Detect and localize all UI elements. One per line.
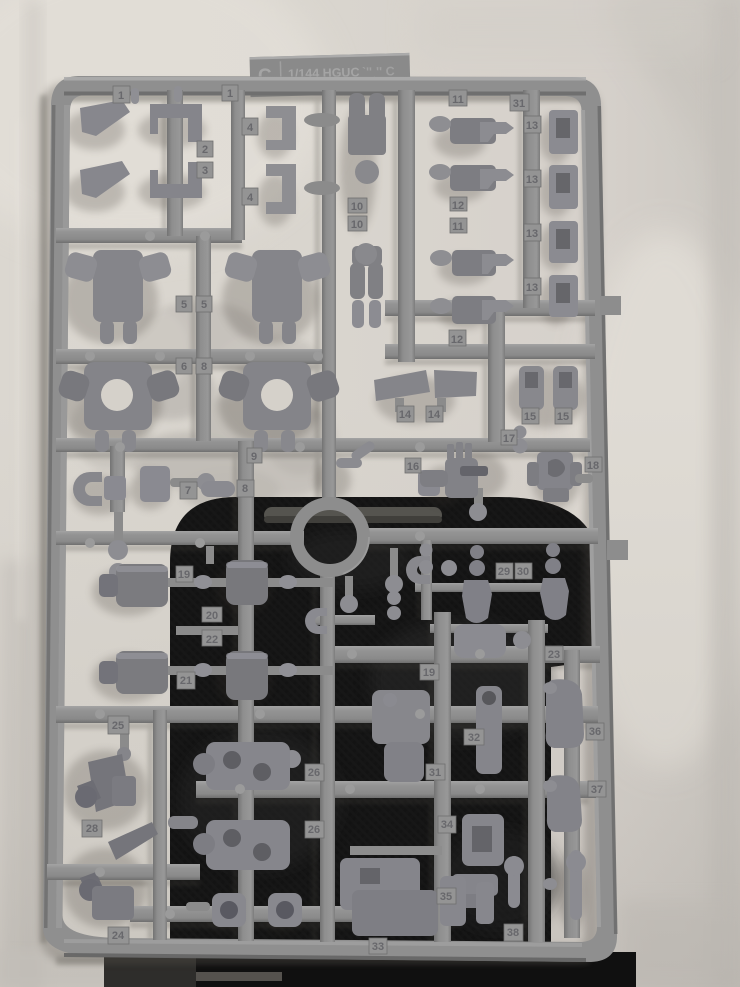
- svg-text:22: 22: [206, 634, 218, 646]
- svg-text:31: 31: [513, 98, 525, 110]
- svg-text:26: 26: [308, 824, 320, 836]
- svg-text:13: 13: [526, 228, 538, 240]
- svg-text:5: 5: [181, 299, 187, 311]
- svg-text:14: 14: [399, 409, 412, 421]
- svg-text:13: 13: [526, 282, 538, 294]
- svg-text:1: 1: [118, 90, 124, 102]
- svg-text:17: 17: [503, 433, 515, 445]
- svg-text:21: 21: [180, 675, 192, 687]
- svg-text:10: 10: [351, 201, 363, 213]
- svg-text:8: 8: [242, 483, 248, 495]
- svg-text:31: 31: [429, 767, 441, 779]
- svg-text:25: 25: [112, 720, 124, 732]
- svg-text:5: 5: [201, 299, 207, 311]
- svg-text:15: 15: [524, 411, 536, 423]
- svg-text:26: 26: [308, 767, 320, 779]
- svg-text:7: 7: [185, 485, 191, 497]
- svg-text:29: 29: [498, 566, 510, 578]
- svg-text:8: 8: [201, 361, 207, 373]
- svg-text:12: 12: [452, 200, 464, 212]
- svg-text:11: 11: [452, 94, 464, 106]
- svg-text:37: 37: [591, 784, 603, 796]
- svg-text:4: 4: [247, 192, 254, 204]
- svg-text:6: 6: [181, 361, 187, 373]
- svg-text:1: 1: [227, 88, 233, 100]
- svg-text:12: 12: [451, 334, 463, 346]
- svg-text:13: 13: [526, 174, 538, 186]
- svg-text:14: 14: [428, 409, 441, 421]
- svg-text:11: 11: [452, 221, 464, 233]
- svg-text:32: 32: [468, 732, 480, 744]
- svg-text:36: 36: [589, 726, 601, 738]
- svg-text:10: 10: [351, 219, 363, 231]
- svg-text:34: 34: [441, 819, 454, 831]
- svg-text:3: 3: [202, 165, 208, 177]
- svg-text:23: 23: [548, 649, 560, 661]
- svg-text:38: 38: [507, 927, 519, 939]
- svg-text:2: 2: [202, 144, 208, 156]
- svg-text:28: 28: [86, 823, 98, 835]
- svg-text:9: 9: [251, 451, 257, 463]
- svg-text:4: 4: [247, 122, 254, 134]
- svg-text:20: 20: [206, 610, 218, 622]
- svg-text:33: 33: [372, 941, 384, 953]
- svg-text:24: 24: [112, 930, 125, 942]
- svg-text:35: 35: [440, 891, 452, 903]
- svg-text:19: 19: [178, 569, 190, 581]
- svg-text:30: 30: [517, 566, 529, 578]
- svg-text:18: 18: [587, 460, 599, 472]
- svg-text:13: 13: [526, 120, 538, 132]
- svg-text:19: 19: [423, 667, 435, 679]
- svg-text:16: 16: [407, 461, 419, 473]
- svg-text:15: 15: [557, 411, 569, 423]
